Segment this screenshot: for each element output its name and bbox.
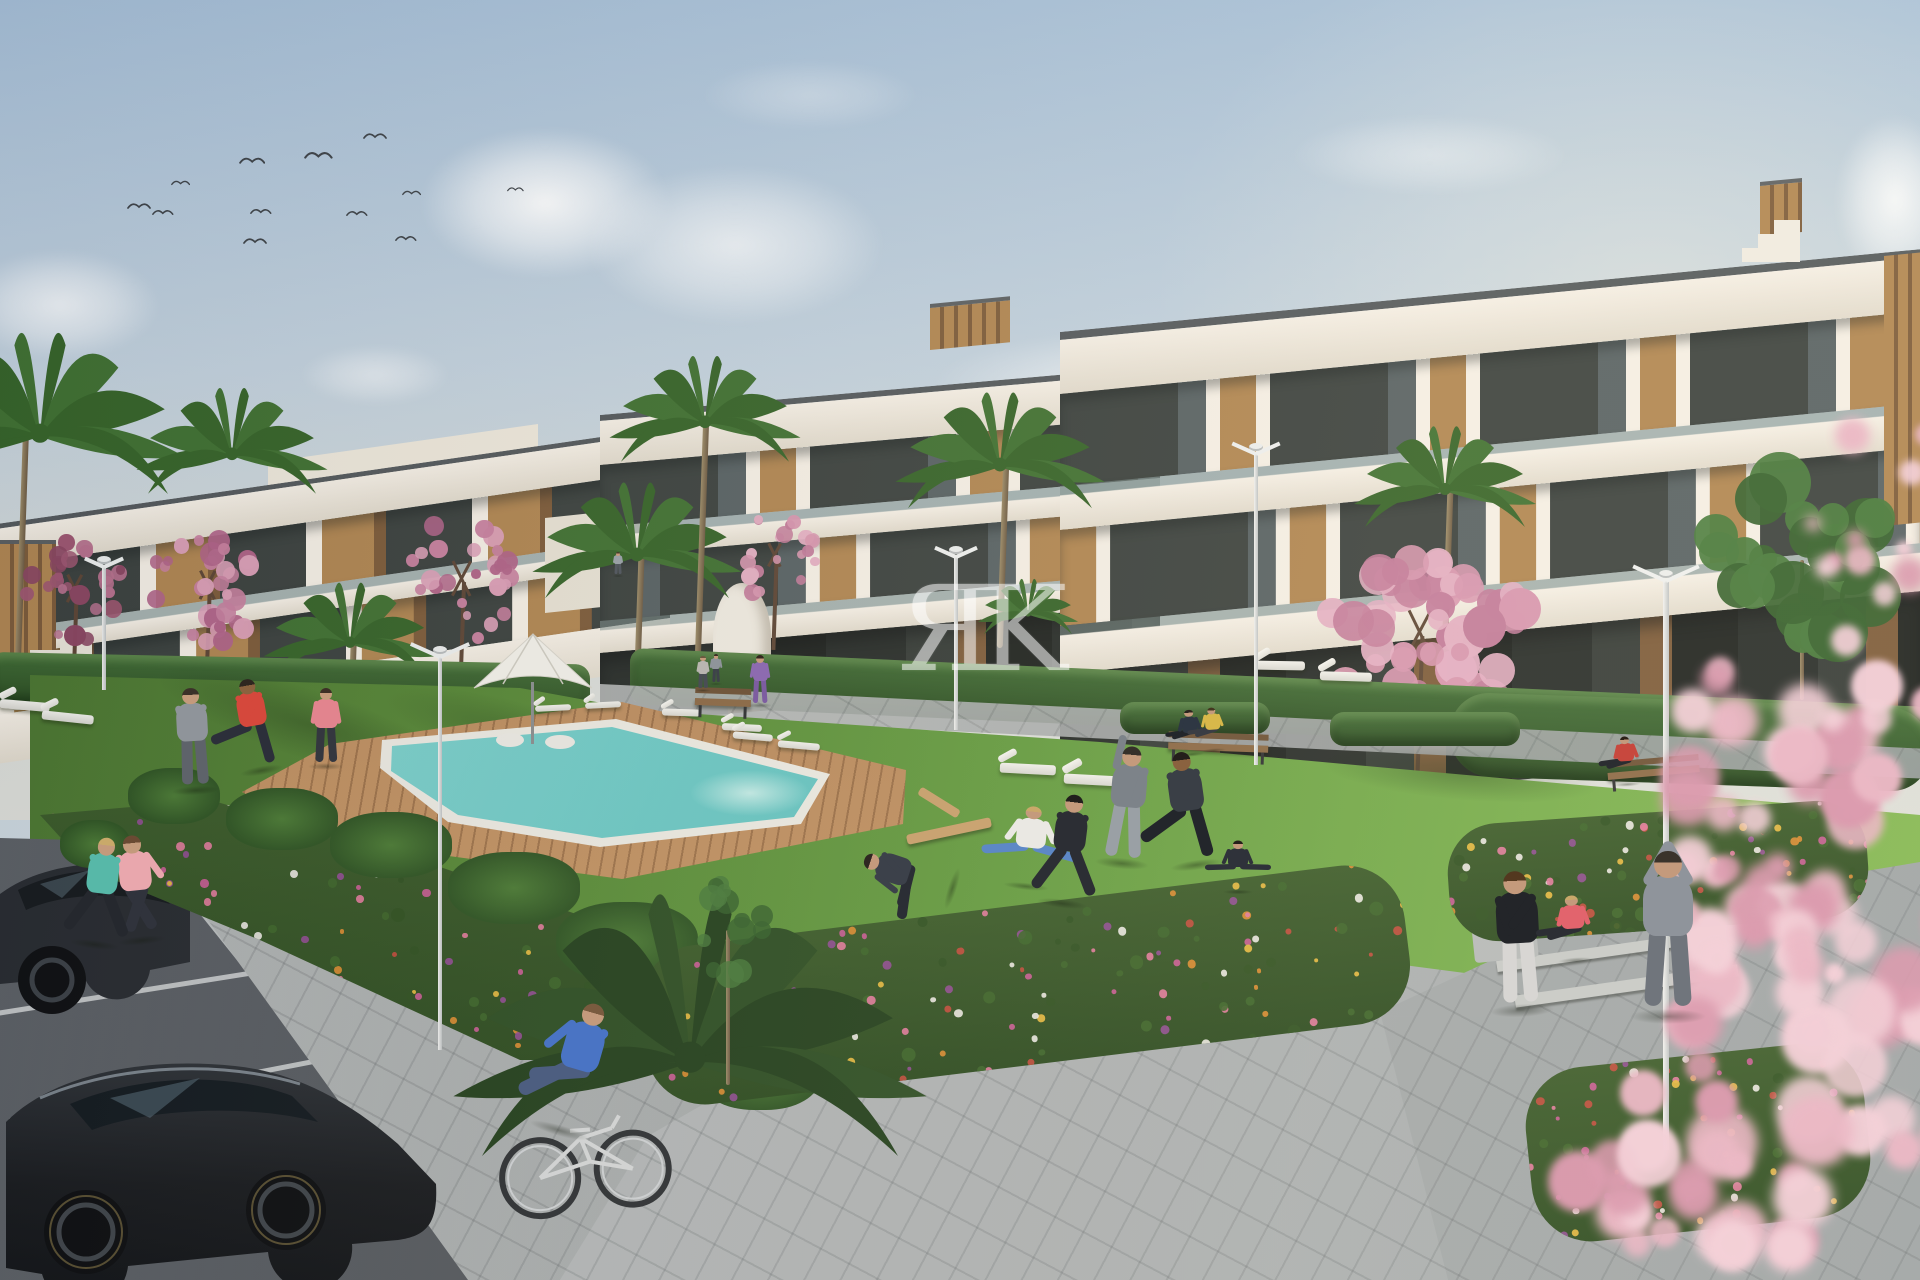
blossom-puff xyxy=(1765,1223,1814,1272)
blossom-puff xyxy=(1713,855,1740,882)
blossom-puff xyxy=(1773,1168,1832,1227)
person-leg xyxy=(1669,928,1692,1006)
person-leg xyxy=(1104,800,1126,856)
person-leg xyxy=(618,563,621,574)
person-leg xyxy=(716,668,720,682)
blossom-puff xyxy=(1896,541,1912,557)
person-leg xyxy=(1188,803,1214,857)
blossom-puff xyxy=(1899,460,1920,485)
blossom-puff xyxy=(1711,696,1759,744)
blossom-puff xyxy=(1885,1131,1920,1169)
person-path-figure-c xyxy=(612,552,624,576)
person-arm xyxy=(620,556,623,563)
person-head xyxy=(97,837,116,856)
person-leg xyxy=(1068,845,1097,896)
person-leg xyxy=(315,724,325,761)
blossom-puff xyxy=(1788,948,1824,984)
blossom-puff xyxy=(1695,1080,1738,1123)
blossom-branch xyxy=(1790,370,1920,630)
blossom-puff xyxy=(1764,853,1792,881)
person-leg xyxy=(254,720,275,764)
blossom-puff xyxy=(1805,516,1820,531)
person-hoodie-exerciser xyxy=(1034,792,1103,906)
blossom-puff xyxy=(1815,557,1836,578)
person-head xyxy=(1233,840,1244,848)
blossom-puff xyxy=(1851,660,1902,711)
blossom-branch xyxy=(1540,1060,1860,1280)
blossom-puff xyxy=(1845,545,1875,575)
person-leg xyxy=(760,678,767,702)
blossom-puff xyxy=(1873,582,1896,605)
blossom-puff xyxy=(1620,1070,1665,1115)
blossom-puff xyxy=(1701,664,1733,696)
person-leg xyxy=(194,735,209,784)
person-purple-woman xyxy=(747,655,773,705)
blossom-puff xyxy=(1911,686,1920,722)
blossom-puff xyxy=(1670,1172,1718,1220)
person-jogger-teal xyxy=(68,835,136,947)
blossom-puff xyxy=(1671,689,1715,733)
person-shadow xyxy=(748,703,771,708)
person-head xyxy=(1121,746,1142,767)
blossom-puff xyxy=(1846,530,1865,549)
person-bench-sitter-b xyxy=(1198,707,1227,751)
person-head xyxy=(320,688,333,701)
person-leg xyxy=(1644,928,1667,1006)
blossom-puff xyxy=(1660,746,1720,806)
person-standing-woman xyxy=(1479,870,1558,1012)
person-leg xyxy=(182,736,194,784)
blossom-puff xyxy=(1892,557,1920,592)
person-ball-player xyxy=(164,687,222,792)
blossom-puff xyxy=(1824,963,1845,984)
blossom-puff xyxy=(1723,1151,1752,1180)
blossom-puff xyxy=(1708,1218,1759,1269)
person-path-figure-b xyxy=(708,654,724,684)
blossom-puff xyxy=(1770,727,1828,785)
person-bench-sitter-red xyxy=(1610,736,1642,786)
person-head xyxy=(700,656,706,662)
person-head xyxy=(756,655,764,663)
person-leg xyxy=(101,887,129,937)
blossom-puff xyxy=(1835,418,1870,453)
person-leg xyxy=(753,678,759,702)
person-sitting-woman-coral xyxy=(1552,894,1596,961)
person-shadow xyxy=(695,689,711,692)
person-arms-up-person xyxy=(1625,852,1710,1016)
blossom-puff xyxy=(1624,1229,1651,1256)
person-leg xyxy=(698,672,702,688)
blossom-puff xyxy=(1852,753,1902,803)
person-leg xyxy=(1128,802,1141,857)
person-yoga-woman xyxy=(1221,841,1255,892)
person-leg xyxy=(1502,937,1518,1002)
person-leg xyxy=(327,724,338,761)
blossom-puff xyxy=(1649,1217,1680,1248)
scene-residential-render: ЯK xyxy=(0,0,1920,1280)
blossom-puff xyxy=(1835,921,1876,962)
blossom-puff xyxy=(1737,915,1771,949)
person-leg xyxy=(1519,936,1539,1002)
person-poolside-woman xyxy=(306,688,347,766)
person-shadow xyxy=(308,763,345,770)
blossom-puff xyxy=(1915,424,1920,445)
watermark-text: ЯK xyxy=(898,582,1053,676)
